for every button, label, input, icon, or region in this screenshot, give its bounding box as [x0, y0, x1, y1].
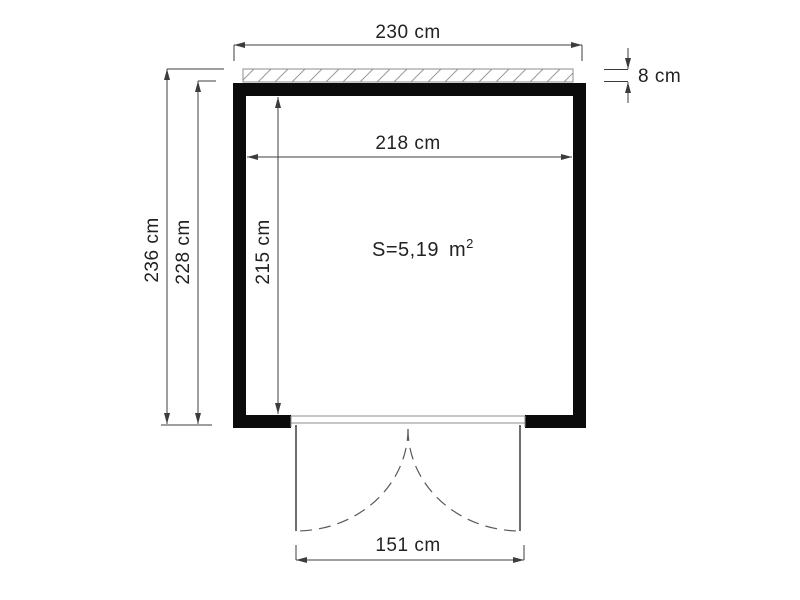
dim-wall-depth: 228 cm: [173, 81, 216, 424]
dim-label-inner-width: 218 cm: [375, 133, 440, 154]
area-exponent: 2: [466, 236, 474, 251]
area-label: S=5,19m2: [372, 236, 474, 261]
dim-label-door-width: 151 cm: [375, 535, 440, 556]
area-unit: m: [449, 239, 466, 261]
area-value: S=5,19: [372, 239, 439, 261]
area-label-group: S=5,19m2: [372, 236, 474, 261]
roof-hatch: [243, 69, 573, 82]
dim-label-roof-overhang: 8 cm: [638, 66, 681, 87]
floor-plan-page: 230 cm 8 cm 218 cm 236 cm 228 cm: [0, 0, 800, 600]
door-opening: [291, 415, 525, 428]
dim-label-outer-depth: 236 cm: [142, 217, 163, 282]
roof-overhang-strip: [243, 69, 573, 82]
door-swing-arc-right: [408, 429, 520, 531]
floor-plan-canvas: 230 cm 8 cm 218 cm 236 cm 228 cm: [0, 0, 800, 600]
dim-label-inner-depth: 215 cm: [253, 219, 274, 284]
double-door: [296, 425, 520, 531]
door-swing-arc-left: [296, 429, 408, 531]
dim-door-width: 151 cm: [296, 535, 524, 560]
dim-label-outer-width: 230 cm: [375, 22, 440, 43]
dim-roof-overhang: 8 cm: [604, 48, 681, 103]
dim-outer-width: 230 cm: [234, 22, 582, 61]
dim-label-wall-depth: 228 cm: [173, 219, 194, 284]
